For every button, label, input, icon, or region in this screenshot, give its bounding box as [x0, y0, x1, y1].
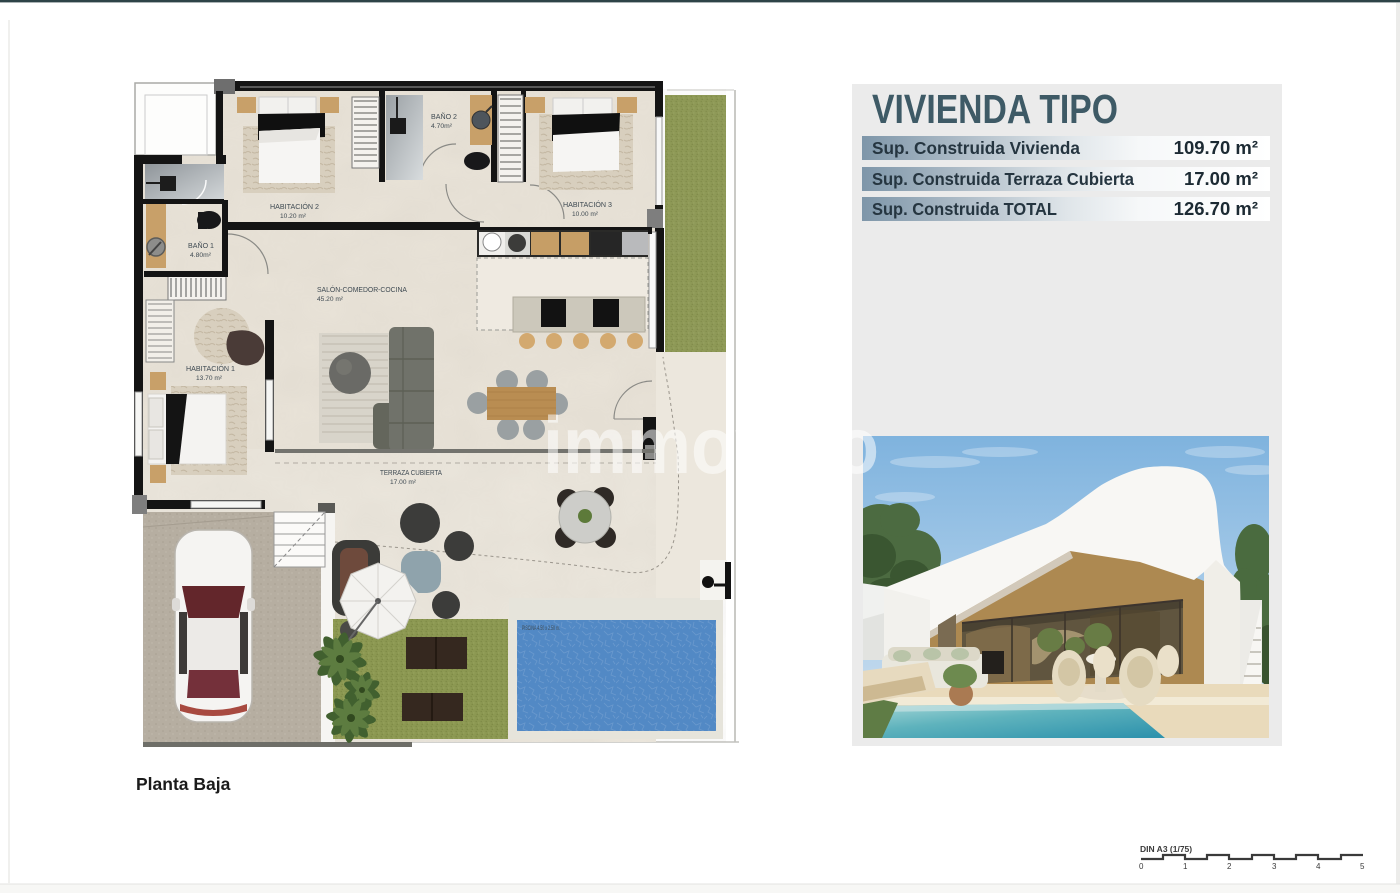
svg-text:17.00 m²: 17.00 m²	[390, 479, 417, 486]
svg-text:SALÓN-COMEDOR-COCINA: SALÓN-COMEDOR-COCINA	[317, 285, 407, 294]
svg-text:13.70 m²: 13.70 m²	[196, 375, 223, 382]
svg-text:109.70 m²: 109.70 m²	[1174, 137, 1258, 158]
svg-text:4.80m²: 4.80m²	[190, 252, 212, 259]
svg-text:Sup. Construida Vivienda: Sup. Construida Vivienda	[872, 138, 1080, 158]
svg-text:5: 5	[1360, 862, 1365, 871]
svg-text:17.00 m²: 17.00 m²	[1184, 168, 1258, 189]
svg-text:10.00 m²: 10.00 m²	[572, 211, 599, 218]
svg-text:Planta Baja: Planta Baja	[136, 774, 231, 794]
svg-text:PISCINA 4.50 x 2.50 m.: PISCINA 4.50 x 2.50 m.	[522, 626, 560, 632]
svg-text:3: 3	[1272, 862, 1277, 871]
svg-text:Sup. Construida Terraza Cubier: Sup. Construida Terraza Cubierta	[872, 169, 1134, 189]
svg-text:TERRAZA CUBIERTA: TERRAZA CUBIERTA	[380, 470, 442, 477]
svg-text:DIN A3 (1/75): DIN A3 (1/75)	[1140, 844, 1192, 854]
svg-text:BAÑO 2: BAÑO 2	[431, 112, 457, 121]
svg-text:BAÑO 1: BAÑO 1	[188, 241, 214, 250]
svg-text:HABITACIÓN 3: HABITACIÓN 3	[563, 200, 612, 209]
svg-text:1: 1	[1183, 862, 1188, 871]
svg-text:126.70 m²: 126.70 m²	[1174, 198, 1258, 219]
svg-text:10.20 m²: 10.20 m²	[280, 213, 307, 220]
svg-text:0: 0	[1139, 862, 1144, 871]
svg-text:immoviso: immoviso	[543, 401, 879, 491]
svg-text:2: 2	[1227, 862, 1232, 871]
svg-text:HABITACIÓN 2: HABITACIÓN 2	[270, 202, 319, 211]
svg-text:4: 4	[1316, 862, 1321, 871]
svg-text:HABITACIÓN 1: HABITACIÓN 1	[186, 364, 235, 373]
svg-text:VIVIENDA TIPO: VIVIENDA TIPO	[872, 86, 1118, 132]
svg-text:Sup. Construida TOTAL: Sup. Construida TOTAL	[872, 199, 1057, 219]
svg-text:45.20 m²: 45.20 m²	[317, 296, 344, 303]
svg-text:4.70m²: 4.70m²	[431, 123, 453, 130]
